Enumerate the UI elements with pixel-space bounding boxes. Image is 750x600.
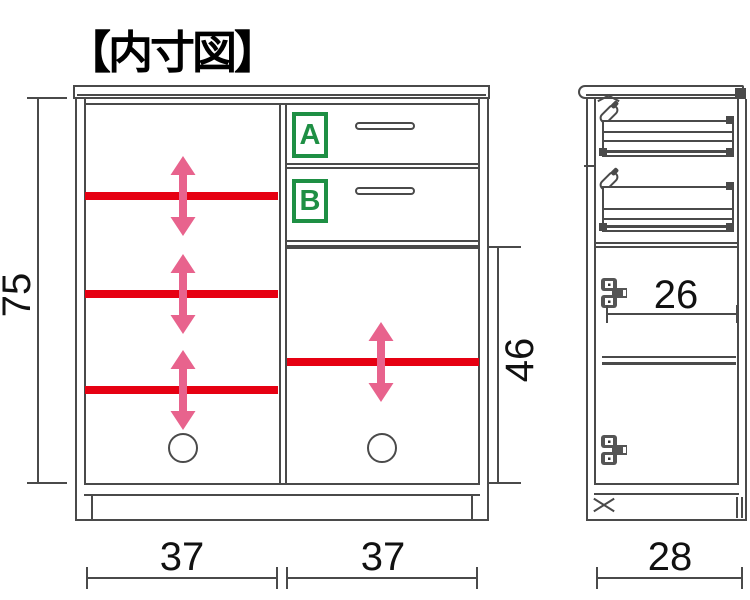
- dim-label-left-width: 37: [142, 537, 222, 577]
- side-drawer-unit-bottom-b: [594, 246, 739, 248]
- center-divider-right: [285, 103, 287, 483]
- dim-tick: [276, 567, 278, 589]
- drawer-rail-bottom: [602, 150, 734, 153]
- drawer-handle: [355, 122, 415, 130]
- cord-hole: [367, 433, 397, 463]
- drawer-a-label: A: [292, 112, 328, 158]
- adjustable-shelf-arrow-icon: [366, 322, 396, 402]
- dim-tick: [27, 482, 67, 484]
- side-shelf-top-line: [602, 356, 736, 358]
- dim-tick: [86, 567, 88, 589]
- base-foot-left: [91, 496, 93, 520]
- drawer-b-label: B: [292, 179, 328, 223]
- dim-tick: [606, 305, 608, 323]
- rail-end-cap: [599, 148, 607, 156]
- dim-tick: [596, 567, 598, 589]
- left-wall-outer: [75, 99, 77, 521]
- inner-top-line: [84, 103, 480, 105]
- adjustable-shelf-arrow-icon: [168, 254, 198, 334]
- base-hatch-mark: [741, 497, 743, 518]
- right-wall-inner: [478, 99, 480, 483]
- side-bottom-board-bottom: [594, 493, 739, 495]
- hinge-icon: [600, 277, 630, 309]
- side-bottom-board-top: [594, 483, 739, 485]
- right-wall-outer: [487, 99, 489, 521]
- drawer-rail-line: [604, 140, 732, 142]
- rail-end-cap: [726, 116, 734, 124]
- drawer-divider-bottom: [287, 167, 478, 169]
- cord-hole: [168, 433, 198, 463]
- front-wall-joint-tick: [584, 165, 596, 167]
- side-back-wall-outer: [745, 99, 747, 521]
- bottom-board-bottom: [84, 494, 480, 496]
- drawer-rail-bottom: [602, 225, 734, 228]
- base-bottom-edge: [75, 519, 489, 521]
- inner-dimensions-diagram: 【内寸図】: [0, 0, 750, 600]
- rail-end-cap: [726, 182, 734, 190]
- rail-end-cap: [599, 223, 607, 231]
- side-back-wall-inner: [737, 99, 739, 483]
- dim-label-outer-depth: 28: [634, 537, 706, 577]
- dim-tick: [736, 305, 738, 323]
- open-section-top-line: [287, 247, 478, 249]
- dim-label-inner-depth: 26: [640, 275, 712, 315]
- diagram-title: 【内寸図】: [66, 16, 276, 81]
- drawer-handle: [355, 187, 415, 195]
- top-board: [73, 85, 490, 99]
- side-front-wall-outer: [586, 99, 588, 521]
- drawer-rail-line: [604, 218, 732, 220]
- dim-tick: [27, 97, 67, 99]
- adjustable-shelf-arrow-icon: [168, 350, 198, 430]
- dim-tick: [487, 482, 521, 484]
- adjustable-shelf-arrow-icon: [168, 156, 198, 236]
- drawer-rail-line: [604, 208, 732, 210]
- base-hatch-mark: [736, 497, 738, 518]
- top-board-edge-line: [77, 94, 486, 96]
- base-foot-right: [471, 496, 473, 520]
- back-corner-joint: [735, 88, 746, 99]
- dim-line-inner-depth: [607, 313, 738, 315]
- drawer-unit-bottom-a: [287, 240, 478, 242]
- drawer-divider-top: [287, 163, 478, 165]
- dim-tick: [741, 567, 743, 589]
- side-front-wall-inner: [594, 99, 596, 483]
- drawer-rail-line: [604, 131, 732, 133]
- side-shelf-front-edge: [602, 362, 736, 365]
- dim-label-inner-height: 75: [0, 265, 43, 325]
- side-base-bottom-edge: [586, 519, 747, 521]
- bottom-board-top: [84, 483, 480, 485]
- hinge-icon: [600, 434, 630, 466]
- rail-end-cap: [726, 148, 734, 156]
- dim-label-right-width: 37: [343, 537, 423, 577]
- side-drawer-unit-bottom-a: [594, 242, 739, 244]
- dim-tick: [487, 246, 521, 248]
- dim-label-open-height: 46: [500, 332, 544, 388]
- dim-tick: [286, 567, 288, 589]
- rail-end-cap: [726, 223, 734, 231]
- center-divider-left: [279, 103, 281, 483]
- dim-tick: [476, 567, 478, 589]
